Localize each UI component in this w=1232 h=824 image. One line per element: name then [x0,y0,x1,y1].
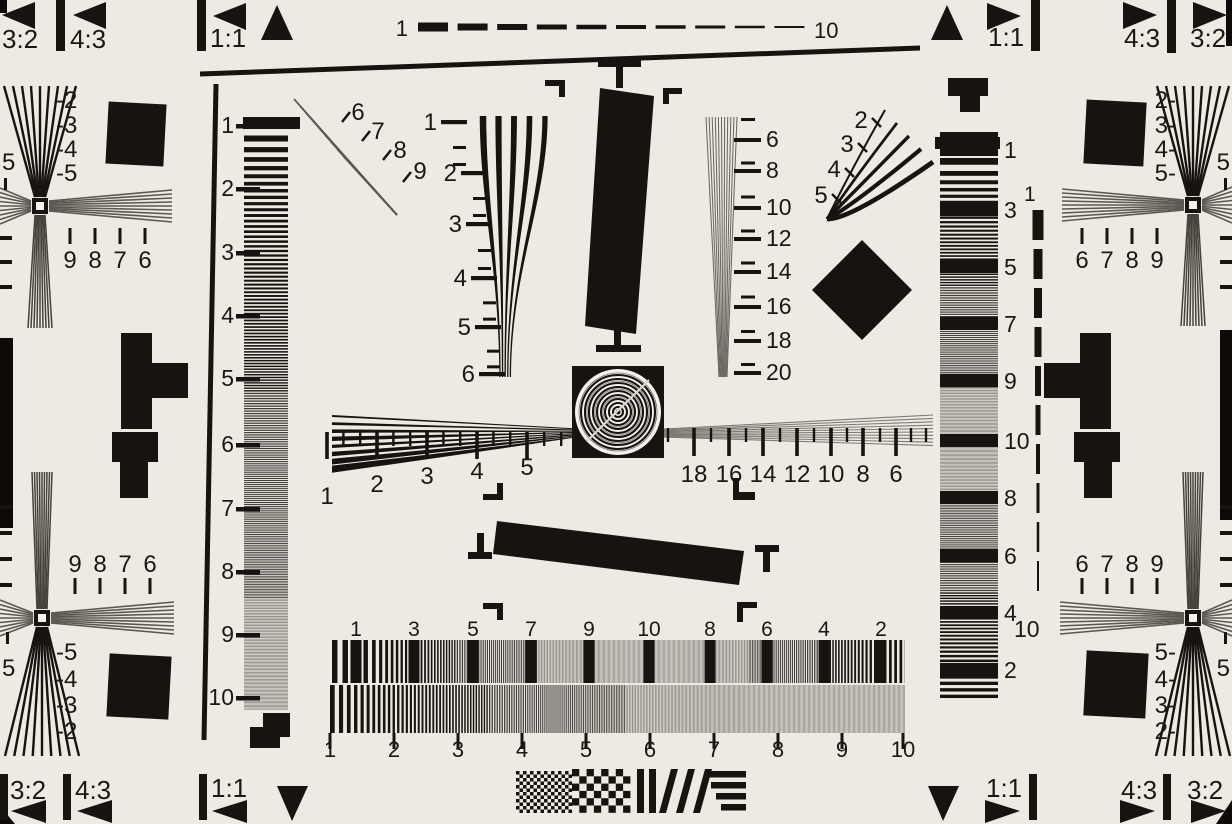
right-column-stripe [940,423,998,424]
left-column-stripe [244,527,288,528]
right-column-stripe [940,195,998,198]
row-a-stripe [667,640,668,683]
row-a-stripe [495,640,496,683]
ruler-label: 3 [420,463,433,490]
left-column-stripe [244,539,288,540]
row-a-separator [705,640,716,683]
row-b-stripe [678,685,679,733]
row-a-stripe [565,640,566,683]
fine-checker-cell [562,796,566,800]
scale-tick [236,507,260,512]
row-a-stripe [796,640,797,683]
row-a-stripe [738,640,739,683]
left-column-stripe [244,649,288,650]
row-b-stripe [467,685,468,733]
row-b-stripe [863,685,864,733]
row-b-stripe [688,685,689,733]
left-column-stripe [244,437,288,438]
row-b-stripe [464,685,466,733]
row-a-stripe [693,640,694,683]
coarse-checker-cell [616,769,623,776]
row-b-stripe [566,685,567,733]
row-a-stripe [847,640,849,683]
dash-step [1036,444,1040,474]
t-mark [763,552,770,572]
segment-separator [940,143,998,156]
right-dash-end-label: 10 [1014,616,1040,642]
right-column-stripe [940,470,998,471]
row-b-stripe [372,685,375,733]
scale-tick-long [441,120,467,124]
right-column-stripe [940,300,998,301]
row-b-stripe [799,685,800,733]
row-a-stripe [760,640,761,683]
row-a-stripe [539,640,540,683]
horizontal-stripe [706,771,746,778]
diag-wedge-label: 6 [351,99,364,126]
cluster-digit-label: 9 [1150,247,1163,274]
scale-tick-short [487,365,500,368]
right-column-stripe [940,258,998,260]
right-column-stripe [940,419,998,420]
right-column-stripe [940,485,998,486]
left-column-stripe [244,702,288,703]
fine-checker-cell [562,789,566,793]
left-column-stripe [244,486,288,487]
row-a-stripe [451,640,452,683]
fine-checker-cell [548,803,552,807]
row-a-stripe [561,640,562,683]
row-a-label: 2 [875,618,887,641]
left-column-stripe [244,482,288,483]
row-a-stripe [573,640,574,683]
right-column-stripe [940,430,998,431]
ruler-tick-short [359,432,361,446]
scale-tick-short [741,118,755,121]
fine-checker-cell [558,792,562,796]
left-column-stripe [244,517,288,518]
right-column-stripe [940,396,998,397]
row-a-stripe [755,640,756,683]
row-a-stripe [562,640,563,683]
photo-edge-corner [1226,0,1232,46]
left-column-stripe [244,659,288,660]
row-a-stripe [443,640,444,683]
right-column-stripe [940,274,998,275]
row-b-stripe [393,685,395,733]
edge-dash [0,260,12,264]
row-a-stripe [431,640,433,683]
scale-tick-short [741,230,755,233]
row-a-stripe [774,640,775,683]
row-a-separator [819,640,830,683]
left-column-stripe [244,640,288,641]
fine-checker-cell [527,803,531,807]
row-a-stripe [741,640,742,683]
cluster-wedge-label: 4- [1155,136,1176,163]
row-b-label: 6 [644,737,656,762]
photo-edge-corner [0,0,7,13]
horizontal-stripe [716,793,746,800]
left-column-stripe [244,525,288,526]
row-b-stripe [509,685,510,733]
row-b-stripe [752,685,753,733]
row-b-stripe [581,685,582,733]
row-b-stripe [700,685,701,733]
fine-checker-cell [541,782,545,786]
fine-checker-cell [551,806,555,810]
fine-checker-cell [562,810,566,814]
cluster-wedge-label: -2 [56,718,77,745]
right-column-stripe [940,360,998,361]
row-b-stripe [361,685,364,733]
left-column-stripe [244,368,288,369]
left-column-stripe [244,284,288,286]
right-column-stripe [940,538,998,539]
row-a-separator [762,640,773,683]
row-b-stripe [548,685,549,733]
left-column-stripe [244,653,288,654]
row-b-stripe [686,685,687,733]
right-column-stripe [940,405,998,406]
ruler-tick-short [813,428,815,442]
row-b-stripe [803,685,804,733]
right-column-stripe [940,590,998,591]
right-column-stripe [940,245,998,247]
row-b-stripe [836,685,837,733]
right-column-label: 4 [1004,600,1017,626]
row-a-stripe [759,640,760,683]
digit-tick [144,228,147,244]
row-a-label: 3 [408,618,420,641]
row-a-stripe [518,640,519,683]
ruler-tick-short [543,432,545,446]
row-a-stripe [790,640,791,683]
scale-tick-long [734,371,761,375]
left-column-stripe [244,280,288,282]
row-a-stripe [634,640,635,683]
left-column-stripe [244,595,288,596]
right-column-stripe [940,447,998,448]
left-column-stripe [244,476,288,477]
black-square [1083,650,1148,718]
left-column-stripe [244,572,288,573]
scale-tick-long [734,339,761,343]
left-column-stripe [244,467,288,468]
row-b-stripe [853,685,854,733]
edge-tick [4,178,7,190]
registration-step [263,713,290,737]
left-column-stripe [244,254,288,256]
row-b-stripe [893,685,894,733]
right-column-stripe [940,473,998,474]
right-column-stripe [940,372,998,373]
row-a-stripe [437,640,439,683]
right-column-stripe [940,408,998,409]
row-b-stripe [619,685,620,733]
row-b-stripe [903,685,904,733]
row-b-stripe [721,685,722,733]
left-column-stripe [244,136,288,142]
left-column-stripe [244,470,288,471]
left-column-stripe [244,519,288,520]
row-b-stripe [640,685,641,733]
row-a-stripe [830,640,831,683]
row-b-stripe [769,685,770,733]
right-column-stripe [940,287,998,288]
row-b-stripe [732,685,733,733]
right-column-stripe [940,335,998,336]
left-column-stripe [244,354,288,356]
dash-step [1034,249,1043,279]
right-column-stripe [940,483,998,484]
dash-step [1033,210,1044,240]
row-b-stripe [674,685,675,733]
flag-bar [199,774,207,820]
row-b-stripe [737,685,738,733]
left-column-stripe [244,709,288,710]
left-column-stripe [244,689,288,690]
left-column-stripe [244,569,288,570]
left-column-stripe [244,514,288,515]
row-b-stripe [832,685,833,733]
scale-tick-short [473,197,486,200]
fine-checker-cell [551,799,555,803]
test-chart-canvas: 3:24:31:11:14:33:23:24:31:11:14:33:2 1 1… [0,0,1232,824]
left-column-stripe [244,690,288,691]
row-a-stripe [687,640,688,683]
row-b-stripe [772,685,773,733]
row-a-stripe [776,640,777,683]
right-column-stripe [940,352,998,353]
row-b-stripe [896,685,897,733]
row-a-stripe [521,640,522,683]
row-a-stripe [658,640,659,683]
ruler-tick-short [509,432,511,446]
left-column-stripe [244,541,288,542]
row-b-stripe [646,685,647,733]
row-a-stripe [364,640,368,683]
row-b-stripe [801,685,802,733]
row-a-stripe [606,640,607,683]
fine-checker-cell [527,796,531,800]
row-b-stripe [473,685,474,733]
row-a-stripe [580,640,581,683]
row-a-stripe [696,640,697,683]
left-column-stripe [244,564,288,565]
right-column-stripe [940,252,998,254]
left-column-stripe [244,655,288,656]
left-column-stripe [244,371,288,372]
row-b-stripe [689,685,690,733]
row-b-stripe [812,685,813,733]
cluster-digit-label: 9 [63,247,76,274]
row-b-stripe [592,685,593,733]
row-b-stripe [698,685,699,733]
left-column-stripe [244,665,288,666]
cluster-wedge-label: 5- [1155,639,1176,666]
left-column-stripe [244,333,288,335]
coarse-checker-cell [623,791,630,798]
left-column-stripe [244,420,288,421]
row-b-stripe [778,685,779,733]
dash-step [656,25,686,29]
left-column-stripe [244,530,288,531]
right-column-stripe [940,461,998,462]
fine-checker-cell [537,785,541,789]
fine-checker-cell [530,785,534,789]
right-column-stripe [940,476,998,477]
row-a-stripe [832,640,833,683]
left-column-stripe [244,357,288,359]
scale-tick-long [734,206,761,210]
right-column-stripe [940,230,998,232]
left-column-stripe [244,323,288,325]
photo-edge-left [0,338,13,528]
row-b-stripe [872,685,873,733]
row-a-label: 9 [583,618,595,641]
row-b-label: 10 [891,737,915,762]
row-b-stripe [696,685,697,733]
fine-checker-cell [544,771,548,775]
row-b-stripe [630,685,631,733]
fine-checker-cell [537,792,541,796]
row-a-stripe [732,640,733,683]
right-column-stripe [940,339,998,340]
fine-checker-cell [565,785,569,789]
fine-checker-cell [548,782,552,786]
digit-tick [94,228,97,244]
black-square [105,102,166,167]
right-column-stripe [940,312,998,313]
edge-dash [1220,285,1232,289]
row-b-stripe [882,685,883,733]
edge-dash [0,505,12,509]
row-a-stripe [454,640,455,683]
right-column-stripe [940,580,998,581]
ruler-label: 10 [818,461,845,488]
row-b-stripe [594,685,595,733]
row-b-stripe [634,685,635,733]
row-a-stripe [541,640,542,683]
row-b-stripe [614,685,615,733]
left-column-stripe [244,413,288,414]
row-b-stripe [747,685,748,733]
left-column-stripe [244,174,288,178]
ruler-tick-short [925,428,927,442]
right-column-stripe [940,413,998,414]
left-column-stripe [244,259,288,261]
row-b-stripe [455,685,457,733]
right-column-label: 8 [1004,485,1017,511]
ruler-tick-tall [861,428,865,456]
left-column-stripe [244,430,288,431]
ruler-tick-tall [761,428,765,456]
cluster-digit-label: 7 [1100,247,1113,274]
left-column-stripe [244,348,288,350]
row-a-stripe [434,640,436,683]
right-column-stripe [940,429,998,430]
row-b-stripe [876,685,877,733]
row-a-stripe [483,640,484,683]
left-column-stripe [244,393,288,394]
right-column-stripe [940,513,998,514]
right-column-stripe [940,506,998,507]
t-mark [616,67,623,88]
right-column-stripe [940,562,998,563]
row-b-stripe [697,685,698,733]
row-b-stripe [603,685,604,733]
cluster-digit-label: 8 [88,247,101,274]
edge-label: 5 [1217,149,1230,176]
left-column-stripe [244,669,288,670]
left-column-stripe [244,202,288,205]
left-column-stripe [244,608,288,609]
row-a-stripe [835,640,837,683]
right-column-stripe [940,582,998,583]
digit-tick [1106,578,1109,594]
left-column-stripe [244,582,288,583]
right-column-stripe [940,646,998,648]
row-b-stripe [886,685,887,733]
row-a-stripe [807,640,808,683]
row-a-stripe [632,640,633,683]
right-column-stripe [940,388,998,389]
coarse-checker-cell [587,784,594,791]
left-column-stripe [244,240,288,242]
right-column-stripe [940,534,998,535]
row-a-stripe [372,640,376,683]
dash-step [774,26,804,28]
right-column-stripe [940,655,998,657]
ruler-tick-tall [425,432,429,459]
row-a-stripe [552,640,553,683]
coarse-checker-cell [609,806,616,813]
right-column-stripe [940,370,998,371]
row-b-stripe [748,685,749,733]
row-b-stripe [516,685,517,733]
row-b-stripe [520,685,521,733]
fine-checker-cell [544,778,548,782]
row-b-stripe [470,685,471,733]
right-column-label: 2 [1004,657,1017,683]
cluster-wedge-label: 3- [1155,692,1176,719]
row-a-stripe [633,640,634,683]
t-mark [468,552,492,559]
t-bar-foot [112,432,158,462]
digit-tick [99,578,102,594]
ruler-tick-tall [475,432,479,459]
row-b-stripe [727,685,728,733]
fine-checker-cell [530,778,534,782]
left-column-stripe [244,425,288,426]
left-column-stripe [244,427,288,428]
left-column-label: 8 [221,558,234,584]
row-b-stripe [742,685,743,733]
row-b-stripe [710,685,711,733]
row-b-stripe [761,685,762,733]
row-b-stripe [784,685,785,733]
ruler-tick-tall [525,432,529,459]
row-b-stripe [484,685,485,733]
cluster-digit-label: 8 [1125,551,1138,578]
row-a-stripe [679,640,680,683]
row-a-stripe [676,640,677,683]
row-a-stripe [782,640,783,683]
row-b-stripe [756,685,757,733]
row-a-stripe [547,640,548,683]
fine-checker-cell [555,789,559,793]
